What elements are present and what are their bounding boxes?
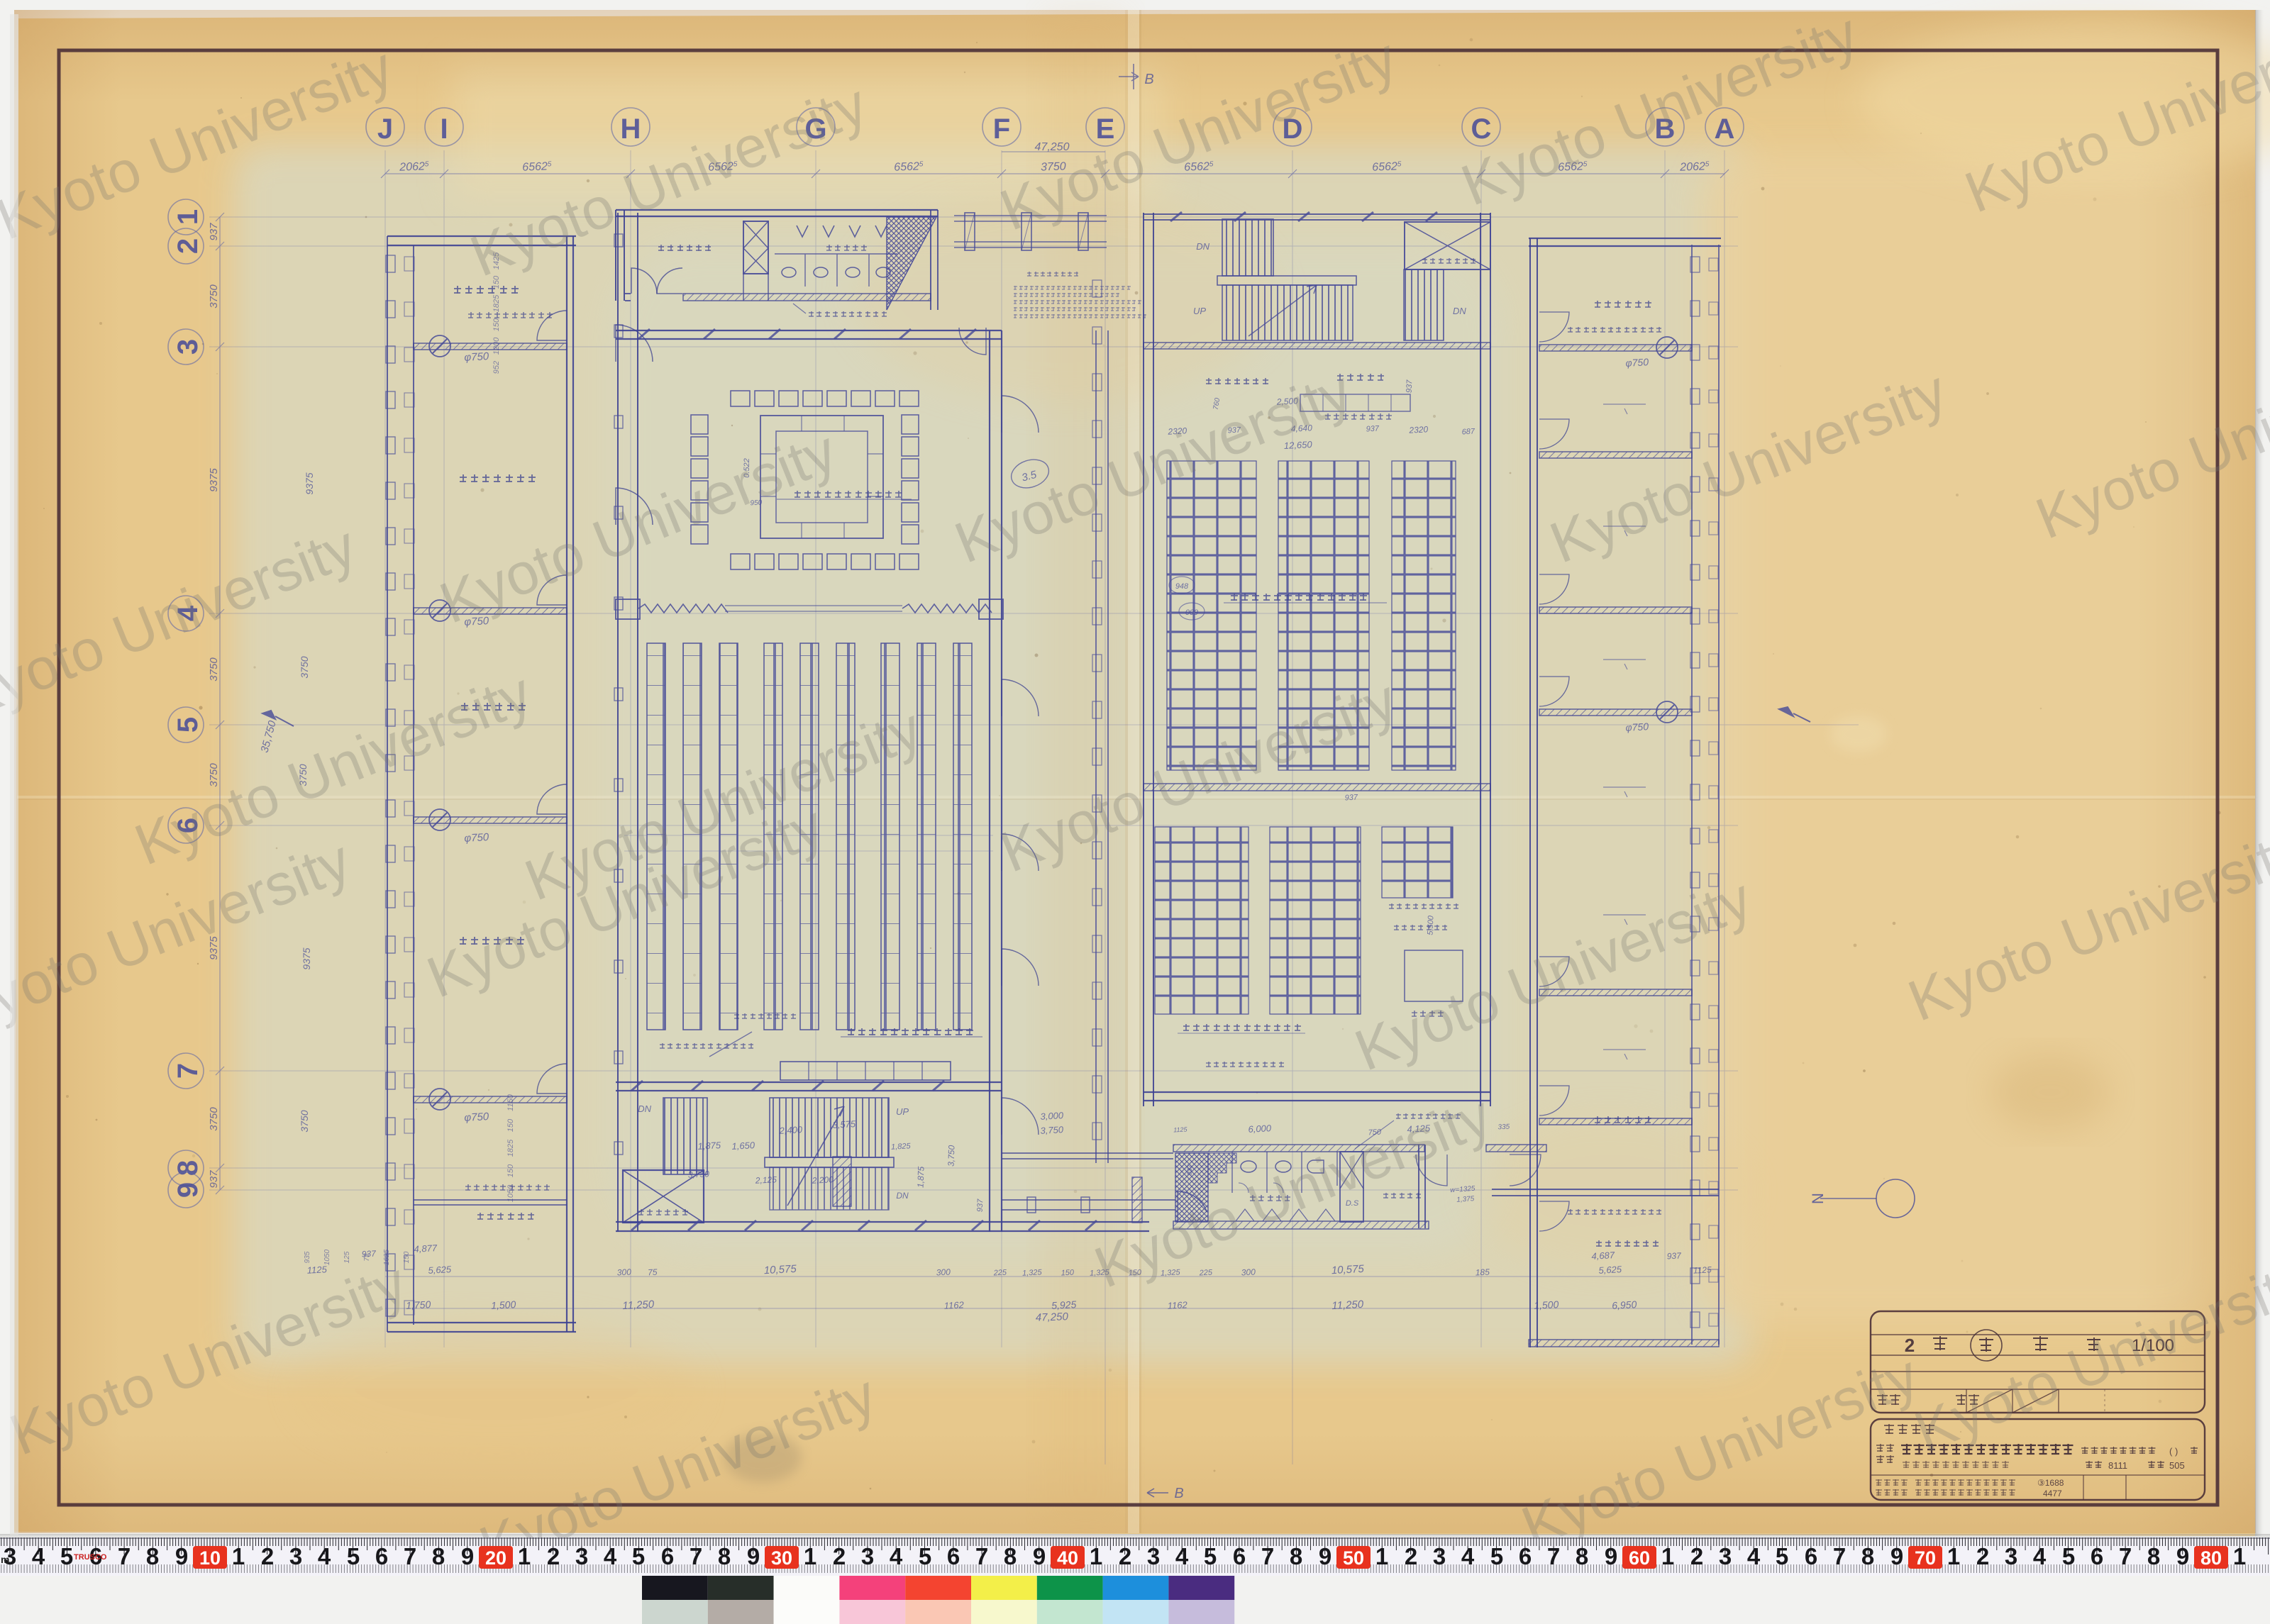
svg-text:φ750: φ750 xyxy=(1625,721,1649,733)
svg-text:4: 4 xyxy=(890,1543,903,1569)
svg-text:7: 7 xyxy=(172,1063,204,1079)
svg-text:8: 8 xyxy=(172,1160,204,1176)
svg-text:3: 3 xyxy=(172,339,204,355)
svg-text:9: 9 xyxy=(1605,1543,1617,1569)
svg-text:N: N xyxy=(1809,1193,1827,1204)
svg-text:937: 937 xyxy=(1344,793,1358,802)
svg-text:1162: 1162 xyxy=(943,1299,964,1311)
svg-text:150: 150 xyxy=(1061,1268,1075,1277)
svg-text:( ): ( ) xyxy=(2169,1446,2178,1457)
svg-text:6,950: 6,950 xyxy=(1612,1298,1637,1311)
svg-text:2: 2 xyxy=(1405,1543,1417,1569)
svg-text:9375: 9375 xyxy=(304,472,315,494)
svg-text:1: 1 xyxy=(172,209,204,225)
svg-text:⑒8111: ⑒8111 xyxy=(2108,1460,2127,1471)
svg-text:8: 8 xyxy=(1576,1543,1588,1569)
svg-text:30: 30 xyxy=(771,1547,792,1569)
svg-text:8: 8 xyxy=(1861,1543,1874,1569)
svg-text:3750: 3750 xyxy=(299,656,310,678)
svg-text:5: 5 xyxy=(1776,1543,1788,1569)
svg-text:DN: DN xyxy=(1196,241,1209,252)
svg-text:7: 7 xyxy=(2119,1543,2132,1569)
svg-text:4: 4 xyxy=(604,1543,617,1569)
svg-text:4: 4 xyxy=(1747,1543,1761,1569)
svg-text:937: 937 xyxy=(1666,1250,1682,1261)
svg-text:9: 9 xyxy=(175,1543,188,1569)
svg-text:937: 937 xyxy=(208,1170,220,1189)
svg-text:C: C xyxy=(1471,113,1492,145)
svg-text:300: 300 xyxy=(1241,1267,1256,1277)
svg-text:6: 6 xyxy=(1233,1543,1246,1569)
svg-text:9: 9 xyxy=(747,1543,760,1569)
svg-text:150: 150 xyxy=(506,1118,515,1132)
svg-text:1: 1 xyxy=(1375,1543,1388,1569)
svg-text:7: 7 xyxy=(118,1543,131,1569)
svg-text:I: I xyxy=(440,113,448,145)
svg-text:9: 9 xyxy=(1033,1543,1046,1569)
svg-text:1: 1 xyxy=(1947,1543,1960,1569)
svg-text:6,000: 6,000 xyxy=(1248,1123,1272,1135)
svg-text:4,687: 4,687 xyxy=(1591,1250,1615,1262)
svg-text:7: 7 xyxy=(1261,1543,1274,1569)
svg-text:9375: 9375 xyxy=(301,947,312,969)
svg-text:1: 1 xyxy=(1661,1543,1674,1569)
svg-text:47,250: 47,250 xyxy=(1036,1311,1069,1324)
svg-text:185: 185 xyxy=(1475,1267,1490,1277)
svg-text:5: 5 xyxy=(60,1543,73,1569)
svg-text:9: 9 xyxy=(2176,1543,2189,1569)
svg-text:9: 9 xyxy=(1890,1543,1903,1569)
svg-text:505: 505 xyxy=(2169,1460,2185,1471)
svg-text:9: 9 xyxy=(1319,1543,1331,1569)
svg-text:20625: 20625 xyxy=(399,160,429,173)
svg-text:5: 5 xyxy=(919,1543,931,1569)
svg-text:948: 948 xyxy=(1175,582,1189,591)
svg-text:2,125: 2,125 xyxy=(754,1174,777,1186)
svg-text:6: 6 xyxy=(2091,1543,2103,1569)
svg-text:3750: 3750 xyxy=(208,1107,220,1131)
svg-text:937: 937 xyxy=(976,1198,985,1213)
svg-text:1825: 1825 xyxy=(506,1139,515,1157)
svg-text:③1688: ③1688 xyxy=(2037,1478,2064,1488)
svg-text:40: 40 xyxy=(1057,1547,1078,1569)
svg-text:2,400: 2,400 xyxy=(778,1124,803,1136)
svg-text:75: 75 xyxy=(648,1267,658,1278)
svg-text:80: 80 xyxy=(2200,1547,2222,1569)
svg-text:5: 5 xyxy=(347,1543,360,1569)
svg-text:8: 8 xyxy=(432,1543,445,1569)
svg-text:952: 952 xyxy=(492,361,501,374)
svg-text:3,750: 3,750 xyxy=(946,1145,956,1167)
svg-text:8: 8 xyxy=(1004,1543,1017,1569)
svg-text:47,250: 47,250 xyxy=(1035,141,1070,153)
svg-text:60: 60 xyxy=(1629,1547,1650,1569)
svg-text:3,750: 3,750 xyxy=(1040,1124,1064,1136)
svg-text:3750: 3750 xyxy=(208,657,220,682)
svg-text:3,575: 3,575 xyxy=(832,1118,856,1130)
svg-text:225: 225 xyxy=(992,1268,1007,1277)
svg-text:2: 2 xyxy=(1119,1543,1131,1569)
svg-text:φ750: φ750 xyxy=(464,350,489,364)
svg-text:4: 4 xyxy=(318,1543,331,1569)
svg-text:7: 7 xyxy=(1547,1543,1560,1569)
svg-text:8: 8 xyxy=(2147,1543,2160,1569)
svg-text:1,825: 1,825 xyxy=(891,1142,912,1151)
svg-text:6: 6 xyxy=(947,1543,960,1569)
svg-text:10,575: 10,575 xyxy=(763,1263,797,1277)
svg-text:300: 300 xyxy=(616,1267,631,1277)
svg-text:UP: UP xyxy=(1193,306,1206,316)
svg-text:1162: 1162 xyxy=(1167,1299,1187,1311)
svg-text:TRUSCO: TRUSCO xyxy=(74,1553,107,1562)
svg-text:10: 10 xyxy=(199,1547,221,1569)
svg-text:65625: 65625 xyxy=(1372,160,1402,173)
svg-text:2: 2 xyxy=(547,1543,560,1569)
svg-text:4: 4 xyxy=(1175,1543,1189,1569)
svg-text:3: 3 xyxy=(575,1543,588,1569)
svg-text:687: 687 xyxy=(1461,427,1475,436)
svg-text:3: 3 xyxy=(1433,1543,1446,1569)
svg-text:7: 7 xyxy=(404,1543,416,1569)
svg-text:335: 335 xyxy=(1497,1123,1510,1132)
svg-text:5: 5 xyxy=(1204,1543,1217,1569)
svg-text:8: 8 xyxy=(718,1543,731,1569)
svg-text:1125: 1125 xyxy=(1173,1125,1188,1133)
svg-text:9375: 9375 xyxy=(208,468,220,492)
svg-text:F: F xyxy=(993,113,1010,145)
svg-text:1: 1 xyxy=(518,1543,531,1569)
svg-text:4: 4 xyxy=(2033,1543,2047,1569)
svg-text:3: 3 xyxy=(1147,1543,1160,1569)
svg-text:DN: DN xyxy=(896,1191,909,1201)
svg-text:150: 150 xyxy=(492,318,501,331)
svg-text:11,250: 11,250 xyxy=(622,1298,655,1312)
svg-text:937: 937 xyxy=(208,223,220,241)
svg-text:m: m xyxy=(1,1554,9,1565)
svg-text:2: 2 xyxy=(1976,1543,1989,1569)
svg-text:1: 1 xyxy=(2233,1543,2246,1569)
svg-text:1125: 1125 xyxy=(306,1264,327,1275)
svg-text:4,877: 4,877 xyxy=(414,1242,438,1255)
svg-text:150: 150 xyxy=(506,1164,515,1177)
svg-text:7: 7 xyxy=(690,1543,702,1569)
svg-text:1050: 1050 xyxy=(323,1249,331,1265)
svg-text:10,575: 10,575 xyxy=(1331,1263,1364,1277)
svg-text:009: 009 xyxy=(1185,608,1198,617)
svg-text:B: B xyxy=(1144,72,1153,87)
svg-text:1: 1 xyxy=(1090,1543,1102,1569)
svg-text:5: 5 xyxy=(632,1543,645,1569)
svg-text:937: 937 xyxy=(1405,379,1414,394)
svg-text:1,500: 1,500 xyxy=(491,1298,516,1311)
svg-text:3750: 3750 xyxy=(208,284,220,308)
svg-text:5,625: 5,625 xyxy=(1598,1264,1622,1276)
svg-text:50: 50 xyxy=(1343,1547,1364,1569)
svg-text:8: 8 xyxy=(146,1543,159,1569)
svg-text:7: 7 xyxy=(1833,1543,1846,1569)
svg-text:UP: UP xyxy=(896,1106,909,1117)
svg-text:937: 937 xyxy=(1366,424,1380,433)
svg-text:5,925: 5,925 xyxy=(1051,1298,1077,1311)
svg-text:2: 2 xyxy=(833,1543,846,1569)
svg-text:1,875: 1,875 xyxy=(915,1166,926,1188)
svg-text:65625: 65625 xyxy=(894,160,924,173)
svg-text:5: 5 xyxy=(2062,1543,2075,1569)
svg-text:7: 7 xyxy=(975,1543,988,1569)
svg-text:65625: 65625 xyxy=(522,160,552,173)
svg-text:9: 9 xyxy=(172,1182,204,1198)
svg-text:4: 4 xyxy=(32,1543,45,1569)
svg-text:9: 9 xyxy=(461,1543,474,1569)
svg-text:J: J xyxy=(377,113,393,145)
svg-text:1,875: 1,875 xyxy=(697,1140,721,1152)
svg-text:2: 2 xyxy=(261,1543,274,1569)
svg-text:5,625: 5,625 xyxy=(428,1264,452,1276)
svg-text:70: 70 xyxy=(1915,1547,1936,1569)
svg-text:φ750: φ750 xyxy=(1625,356,1649,369)
svg-text:5,500: 5,500 xyxy=(1427,915,1436,935)
svg-text:2320: 2320 xyxy=(1408,424,1429,435)
svg-text:3: 3 xyxy=(289,1543,302,1569)
svg-text:B: B xyxy=(1174,1486,1183,1501)
svg-text:2: 2 xyxy=(172,238,204,254)
svg-text:3: 3 xyxy=(2005,1543,2017,1569)
svg-text:11,250: 11,250 xyxy=(1331,1298,1364,1312)
svg-text:φ750: φ750 xyxy=(464,831,489,845)
svg-text:3750: 3750 xyxy=(299,1110,310,1132)
svg-text:6: 6 xyxy=(1519,1543,1532,1569)
svg-text:3,000: 3,000 xyxy=(1040,1110,1064,1122)
svg-text:3,750: 3,750 xyxy=(687,1169,709,1180)
svg-text:935: 935 xyxy=(304,1251,311,1263)
svg-text:DN: DN xyxy=(638,1103,651,1114)
svg-text:20: 20 xyxy=(485,1547,506,1569)
svg-text:125: 125 xyxy=(343,1251,351,1263)
svg-text:6: 6 xyxy=(661,1543,674,1569)
svg-text:3: 3 xyxy=(861,1543,874,1569)
svg-text:4477: 4477 xyxy=(2043,1489,2062,1498)
svg-text:6: 6 xyxy=(1805,1543,1817,1569)
svg-text:937: 937 xyxy=(1186,1164,1194,1175)
svg-text:1,375: 1,375 xyxy=(1456,1195,1475,1204)
svg-text:4: 4 xyxy=(1461,1543,1475,1569)
svg-text:2,200: 2,200 xyxy=(811,1174,834,1186)
svg-text:6: 6 xyxy=(375,1543,388,1569)
svg-text:8: 8 xyxy=(1290,1543,1302,1569)
svg-text:1825: 1825 xyxy=(492,294,501,312)
svg-text:1,325: 1,325 xyxy=(1022,1268,1043,1277)
svg-text:20625: 20625 xyxy=(1679,160,1710,173)
svg-text:225: 225 xyxy=(1198,1268,1213,1277)
svg-text:3: 3 xyxy=(1719,1543,1732,1569)
svg-text:φ750: φ750 xyxy=(464,1111,489,1124)
svg-text:300: 300 xyxy=(936,1267,951,1277)
svg-text:H: H xyxy=(621,113,641,145)
svg-text:5: 5 xyxy=(1490,1543,1503,1569)
svg-text:1,650: 1,650 xyxy=(731,1140,755,1152)
svg-text:5: 5 xyxy=(172,717,204,733)
svg-text:1: 1 xyxy=(804,1543,816,1569)
svg-text:2: 2 xyxy=(1690,1543,1703,1569)
svg-text:1: 1 xyxy=(232,1543,245,1569)
svg-text:DN: DN xyxy=(1453,306,1466,316)
